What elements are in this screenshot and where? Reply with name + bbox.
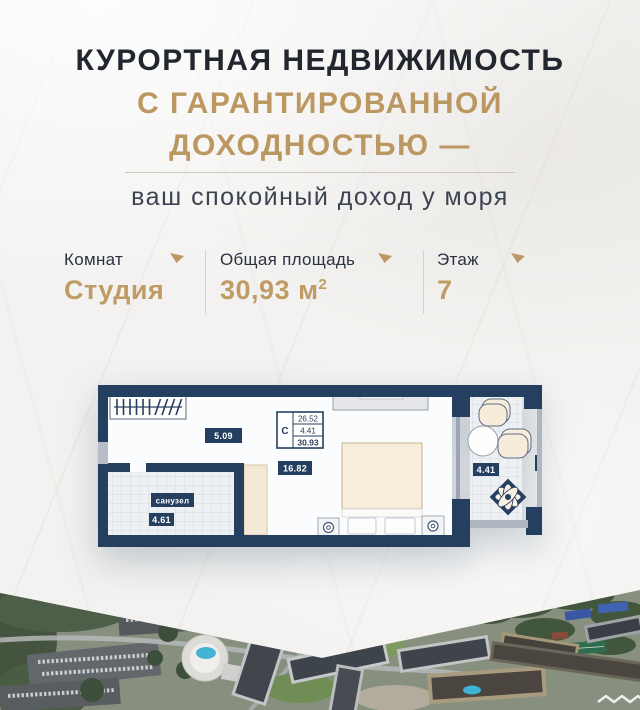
- corner-triangle-icon: [170, 253, 184, 263]
- stamp-area-total: 30.93: [297, 438, 319, 448]
- apartment-stamp-table: С 26.52 4.41 30.93: [277, 412, 323, 448]
- area-label-balcony: 4.41: [473, 463, 499, 476]
- svg-text:4.41: 4.41: [477, 465, 496, 475]
- svg-text:16.82: 16.82: [283, 464, 307, 474]
- stamp-area-main: 26.52: [298, 415, 319, 424]
- headline-line3: ДОХОДНОСТЬЮ —: [0, 129, 640, 163]
- pillow: [348, 518, 376, 534]
- stamp-area-balcony: 4.41: [300, 427, 316, 436]
- real-estate-poster: КУРОРТНАЯ НЕДВИЖИМОСТЬ С ГАРАНТИРОВАННОЙ…: [0, 0, 640, 710]
- svg-text:санузел: санузел: [156, 497, 190, 506]
- balcony-table: [468, 426, 498, 456]
- spec-label-area: Общая площадь: [220, 250, 355, 270]
- aerial-photo: [0, 570, 640, 710]
- area-label-bathroom: 4.61: [149, 513, 174, 526]
- entrance-opening: [98, 442, 108, 464]
- spec-value-area: 30,93 м2: [220, 275, 392, 306]
- kitchen-counter: [244, 465, 267, 535]
- spec-label-rooms: Комнат: [64, 250, 123, 270]
- nightstand-lamp-icon: [422, 516, 444, 536]
- svg-text:4.61: 4.61: [152, 515, 171, 525]
- nightstand-lamp-icon: [318, 518, 339, 537]
- spec-value-rooms: Студия: [64, 275, 184, 306]
- headline-line1: КУРОРТНАЯ НЕДВИЖИМОСТЬ: [0, 44, 640, 78]
- balcony-glazing: [537, 409, 542, 507]
- area-superscript: 2: [319, 276, 328, 293]
- wardrobe-hangers-icon: [110, 395, 186, 419]
- spec-column-area: Общая площадь 30,93 м2: [220, 250, 392, 306]
- spec-column-floor: Этаж 7: [437, 250, 525, 306]
- balcony-chair: [479, 399, 510, 426]
- spec-column-rooms: Комнат Студия: [64, 250, 184, 306]
- divider-line: [125, 172, 515, 173]
- balcony-glazing: [470, 520, 528, 528]
- svg-text:5.09: 5.09: [214, 431, 233, 441]
- floor-plan: С 26.52 4.41 30.93 5.09 16.82 санузел 4.…: [94, 377, 546, 549]
- tagline: ваш спокойный доход у моря: [0, 183, 640, 212]
- corner-triangle-icon: [378, 253, 392, 263]
- balcony-door: [456, 417, 460, 499]
- headline-line2: С ГАРАНТИРОВАННОЙ: [0, 87, 640, 121]
- corner-triangle-icon: [511, 253, 525, 263]
- stamp-type: С: [281, 426, 288, 437]
- column-divider: [423, 250, 424, 314]
- area-number: 30,93 м: [220, 275, 319, 305]
- area-label-hall: 5.09: [205, 428, 242, 443]
- area-label-living: 16.82: [278, 461, 312, 475]
- bathroom-label: санузел: [151, 493, 194, 507]
- spec-value-floor: 7: [437, 275, 525, 306]
- pillow: [385, 518, 415, 534]
- column-divider: [205, 250, 206, 314]
- balcony-chair: [498, 429, 531, 458]
- spec-label-floor: Этаж: [437, 250, 479, 270]
